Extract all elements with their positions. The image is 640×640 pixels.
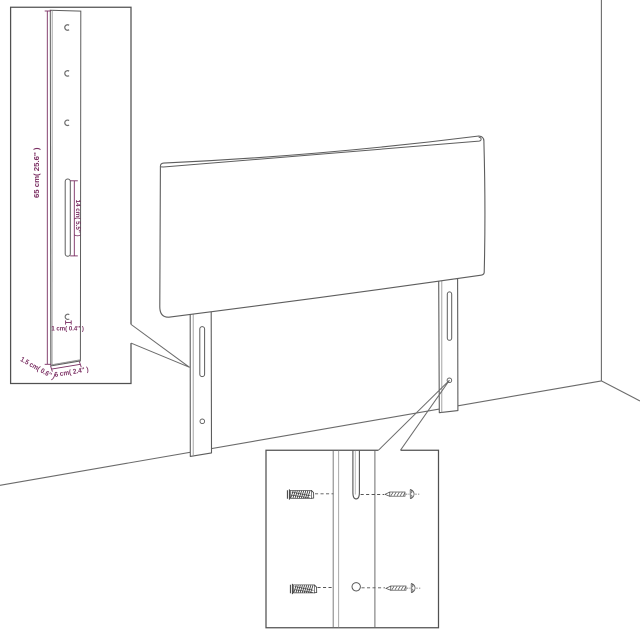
svg-text:1 cm( 0.4'' ): 1 cm( 0.4'' ) — [51, 326, 84, 333]
svg-text:65 cm( 25.6'' ): 65 cm( 25.6'' ) — [34, 148, 41, 199]
svg-text:14 cm( 5.5'' ): 14 cm( 5.5'' ) — [74, 200, 81, 237]
